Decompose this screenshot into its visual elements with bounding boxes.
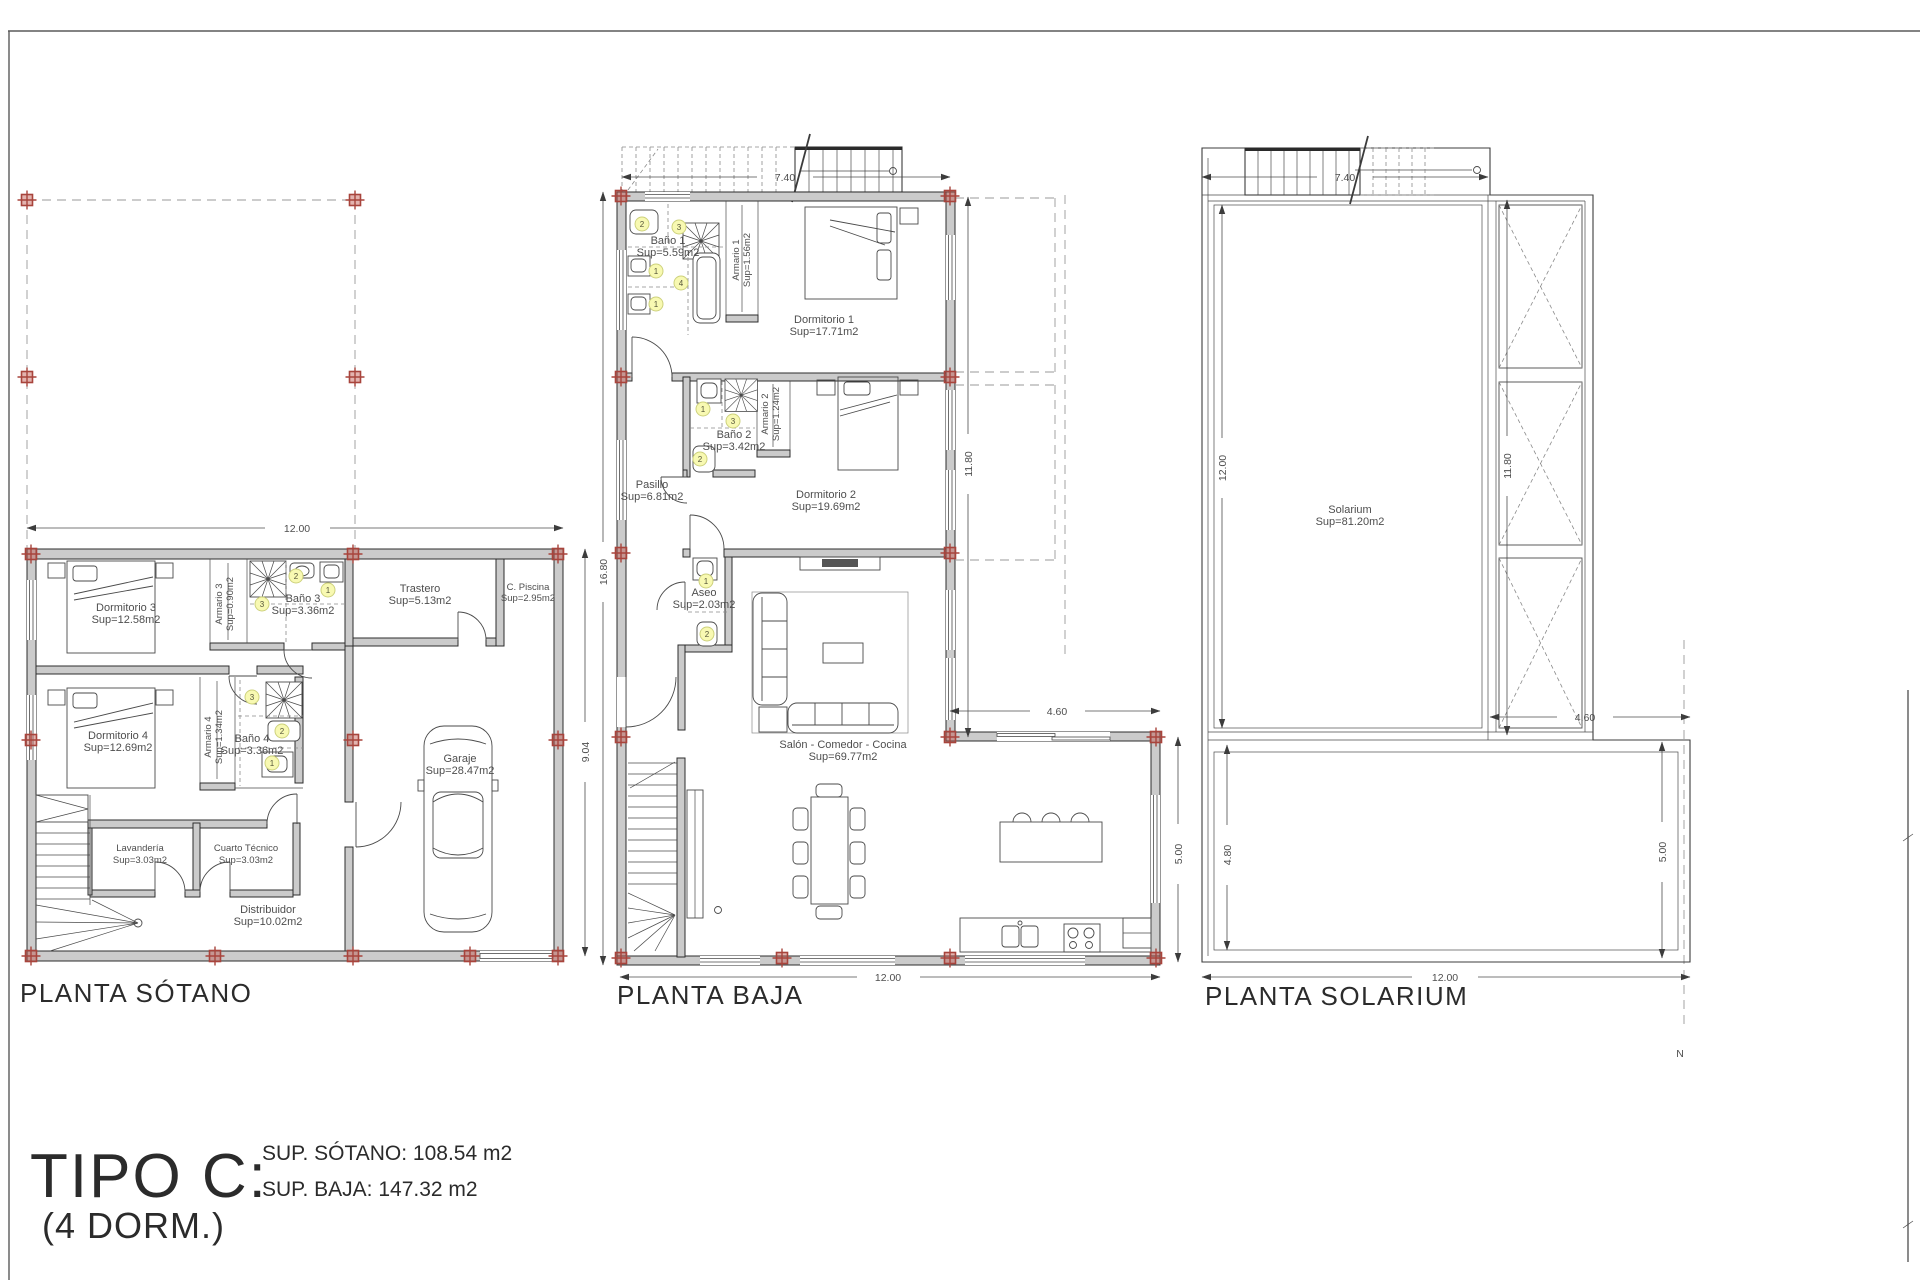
svg-text:Sup=28.47m2: Sup=28.47m2 [426, 765, 495, 777]
svg-text:2: 2 [705, 630, 710, 639]
baja-projection [955, 195, 1065, 655]
svg-text:Sup=0.90m2: Sup=0.90m2 [225, 577, 236, 631]
svg-text:Dormitorio 4: Dormitorio 4 [88, 730, 148, 742]
svg-text:Sup=5.59m2: Sup=5.59m2 [637, 247, 700, 259]
tv-icon [800, 557, 880, 570]
svg-text:Cuarto Técnico: Cuarto Técnico [214, 843, 278, 854]
svg-text:Dormitorio 2: Dormitorio 2 [796, 489, 856, 501]
svg-text:Sup=3.03m2: Sup=3.03m2 [113, 855, 167, 866]
svg-text:Sup=81.20m2: Sup=81.20m2 [1316, 516, 1385, 528]
svg-text:1: 1 [270, 759, 275, 768]
svg-text:3: 3 [731, 417, 736, 426]
sotano-projection [18, 191, 365, 550]
plan-baja: 2 3 1 4 1 1 3 2 1 2 7.40 16.80 11.80 4.6… [598, 134, 1185, 1010]
svg-text:Armario 3: Armario 3 [214, 583, 225, 624]
svg-text:Solarium: Solarium [1328, 504, 1371, 516]
dim-baja-bottom: 12.00 [875, 972, 901, 984]
cooktop-icon [1064, 924, 1100, 952]
svg-text:Dormitorio 1: Dormitorio 1 [794, 314, 854, 326]
svg-text:4: 4 [679, 279, 684, 288]
bed-icon [817, 377, 918, 470]
svg-text:Sup=5.13m2: Sup=5.13m2 [389, 595, 452, 607]
surface-baja-label: SUP. BAJA: 147.32 m2 [262, 1178, 478, 1201]
svg-text:Baño 4: Baño 4 [235, 733, 270, 745]
svg-text:2: 2 [698, 455, 703, 464]
svg-text:Sup=69.77m2: Sup=69.77m2 [809, 751, 878, 763]
north-label: N [1676, 1048, 1684, 1060]
svg-text:1: 1 [654, 300, 659, 309]
svg-text:Distribuidor: Distribuidor [240, 904, 296, 916]
svg-text:Baño 1: Baño 1 [651, 235, 686, 247]
svg-text:Sup=19.69m2: Sup=19.69m2 [792, 501, 861, 513]
svg-text:Aseo: Aseo [691, 587, 716, 599]
svg-text:Sup=2.03m2: Sup=2.03m2 [673, 599, 736, 611]
dim-solarium-terrace-left: 4.80 [1222, 845, 1234, 866]
svg-text:Baño 3: Baño 3 [286, 593, 321, 605]
title-block: TIPO C: (4 DORM.) SUP. SÓTANO: 108.54 m2… [30, 1142, 512, 1246]
svg-text:1: 1 [654, 267, 659, 276]
sofa-icon [752, 592, 908, 733]
solarium-dimensions: 7.40 12.00 11.80 4.60 4.80 5.00 12.00 [1202, 172, 1690, 984]
solarium-walls [1202, 158, 1678, 956]
svg-text:1: 1 [701, 405, 706, 414]
dim-baja-kitchen-w: 4.60 [1047, 706, 1068, 718]
svg-text:Sup=12.69m2: Sup=12.69m2 [84, 742, 153, 754]
svg-text:Sup=3.03m2: Sup=3.03m2 [219, 855, 273, 866]
svg-text:Sup=10.02m2: Sup=10.02m2 [234, 916, 303, 928]
svg-text:2: 2 [280, 727, 285, 736]
plan-title-sotano: PLANTA SÓTANO [20, 978, 252, 1008]
plan-sotano: 3 2 1 3 2 1 12.00 9.04 Dormitorio 3 Sup=… [18, 191, 593, 1009]
solarium-outline [1202, 148, 1690, 962]
svg-text:3: 3 [260, 600, 265, 609]
svg-text:Lavandería: Lavandería [116, 843, 164, 854]
dim-sotano-height: 9.04 [580, 742, 592, 763]
kitchen-sink-icon [1002, 921, 1038, 947]
solarium-stairs-icon [1245, 136, 1481, 204]
dim-sotano-width: 12.00 [284, 523, 310, 535]
surface-sotano-label: SUP. SÓTANO: 108.54 m2 [262, 1142, 512, 1165]
svg-text:Armario 2: Armario 2 [760, 393, 771, 434]
baja-room-labels: Baño 1 Sup=5.59m2 Armario 1 Sup=1.56m2 D… [621, 233, 908, 763]
plan-solarium: 7.40 12.00 11.80 4.60 4.80 5.00 12.00 So… [1202, 136, 1690, 1011]
dim-baja-right: 11.80 [963, 451, 975, 477]
svg-text:2: 2 [294, 572, 299, 581]
svg-text:2: 2 [640, 220, 645, 229]
baja-stairs-icon [628, 762, 722, 951]
solarium-room-labels: Solarium Sup=81.20m2 [1316, 504, 1385, 528]
svg-text:Salón - Comedor - Cocina: Salón - Comedor - Cocina [779, 739, 907, 751]
type-label: TIPO C: [30, 1142, 268, 1211]
svg-text:Baño 2: Baño 2 [717, 429, 752, 441]
kitchen-counter [960, 918, 1151, 952]
svg-text:3: 3 [677, 223, 682, 232]
svg-text:Sup=3.42m2: Sup=3.42m2 [703, 441, 766, 453]
svg-text:C. Piscina: C. Piscina [507, 582, 550, 593]
svg-text:Sup=12.58m2: Sup=12.58m2 [92, 614, 161, 626]
dim-solarium-mid: 11.80 [1502, 453, 1514, 479]
svg-text:1: 1 [326, 586, 331, 595]
dining-table-icon [793, 784, 865, 919]
svg-text:Armario 4: Armario 4 [203, 716, 214, 757]
svg-text:Sup=1.56m2: Sup=1.56m2 [742, 233, 753, 287]
dim-solarium-terrace-w: 4.60 [1575, 712, 1596, 724]
plan-title-baja: PLANTA BAJA [617, 980, 804, 1010]
svg-text:Sup=17.71m2: Sup=17.71m2 [790, 326, 859, 338]
dim-solarium-top: 7.40 [1335, 172, 1356, 184]
dim-baja-left: 16.80 [598, 559, 610, 585]
svg-text:Pasillo: Pasillo [636, 479, 668, 491]
floorplan-sheet: N [0, 0, 1920, 1280]
svg-text:Sup=2.95m2: Sup=2.95m2 [501, 593, 555, 604]
dim-baja-top: 7.40 [775, 172, 796, 184]
svg-text:1: 1 [704, 577, 709, 586]
svg-text:Sup=6.81m2: Sup=6.81m2 [621, 491, 684, 503]
kitchen-island-icon [1000, 813, 1102, 862]
dim-solarium-left: 12.00 [1217, 455, 1229, 481]
dim-baja-kitchen-h: 5.00 [1173, 844, 1185, 865]
svg-text:Trastero: Trastero [400, 583, 441, 595]
svg-text:Sup=1.24m2: Sup=1.24m2 [771, 387, 782, 441]
dim-solarium-terrace-right: 5.00 [1657, 842, 1669, 863]
plan-title-solarium: PLANTA SOLARIUM [1205, 981, 1468, 1011]
dorm-count-label: (4 DORM.) [42, 1205, 225, 1246]
sheet-frame: N [8, 31, 1920, 1280]
svg-text:Sup=3.36m2: Sup=3.36m2 [272, 605, 335, 617]
svg-text:3: 3 [250, 693, 255, 702]
svg-text:Garaje: Garaje [443, 753, 476, 765]
bed-icon [805, 207, 918, 299]
svg-text:Armario 1: Armario 1 [731, 239, 742, 280]
svg-text:Sup=3.36m2: Sup=3.36m2 [221, 745, 284, 757]
svg-text:Dormitorio 3: Dormitorio 3 [96, 602, 156, 614]
